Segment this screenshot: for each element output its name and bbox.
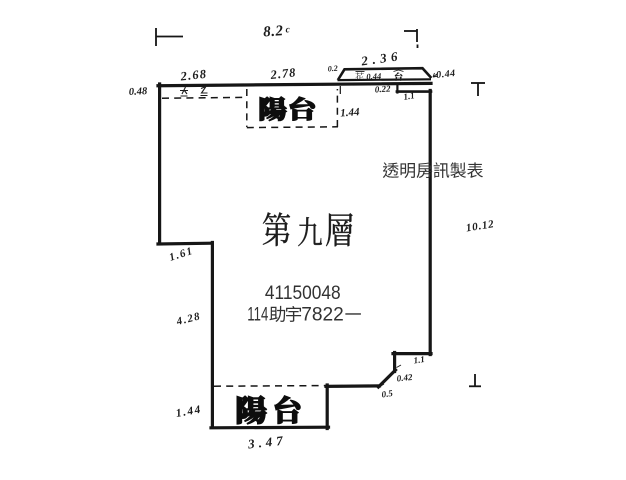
svg-text:0.22: 0.22 xyxy=(374,83,391,94)
svg-text:0.44: 0.44 xyxy=(436,68,457,81)
svg-text:1.1: 1.1 xyxy=(403,90,416,102)
svg-text:8.2: 8.2 xyxy=(263,23,284,40)
svg-text:0.48: 0.48 xyxy=(129,86,149,98)
svg-text:41150048: 41150048 xyxy=(265,282,341,304)
svg-text:0.44: 0.44 xyxy=(366,71,381,82)
svg-text:1.1: 1.1 xyxy=(413,354,426,365)
svg-text:7822: 7822 xyxy=(301,304,344,326)
svg-text:1.44: 1.44 xyxy=(340,106,361,119)
svg-text:0.5: 0.5 xyxy=(381,388,394,400)
svg-text:114: 114 xyxy=(247,304,268,326)
svg-text:2.68: 2.68 xyxy=(179,67,208,84)
svg-text:0.42: 0.42 xyxy=(396,372,413,384)
svg-text:2.78: 2.78 xyxy=(269,65,297,82)
svg-text:0.2: 0.2 xyxy=(327,64,338,74)
